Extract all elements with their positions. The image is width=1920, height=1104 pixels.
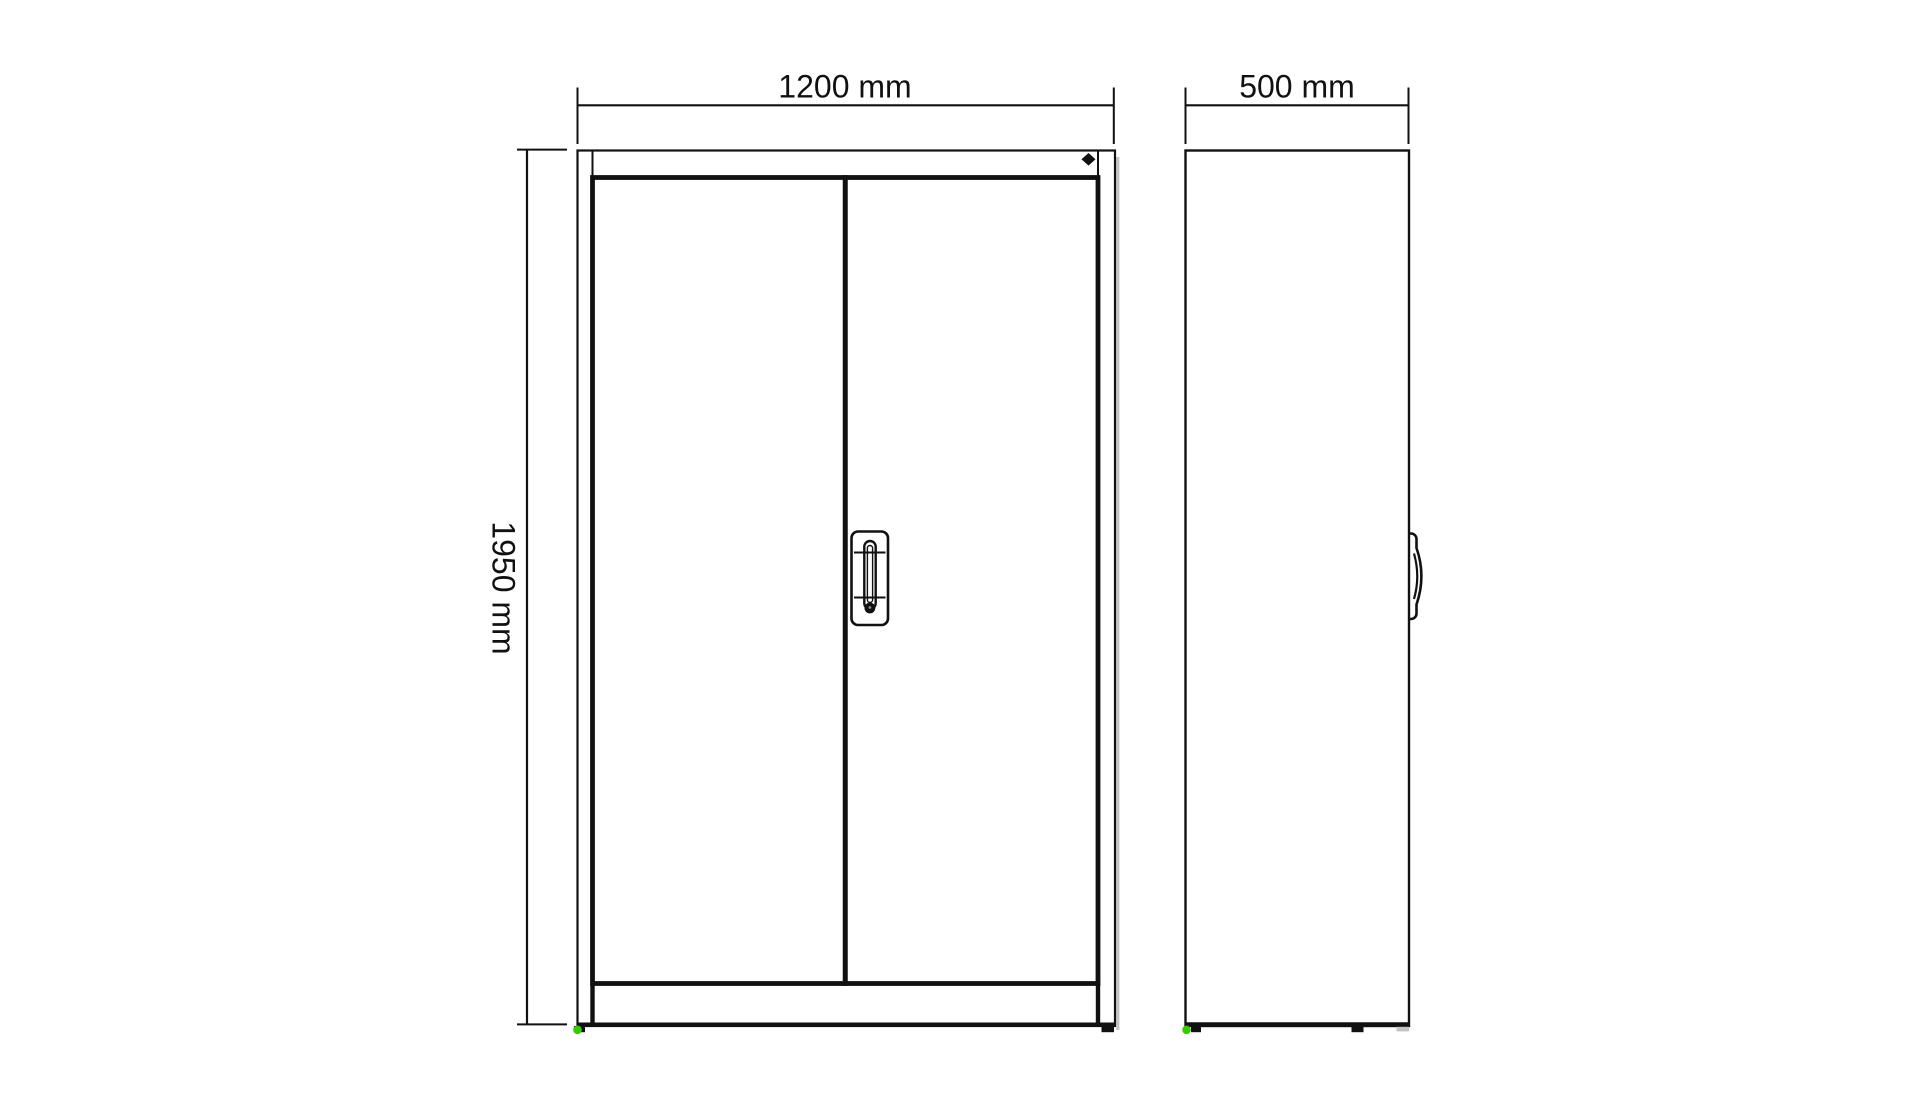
dimension-width-label: 1200 mm [778,69,911,105]
base-side-lines [593,984,1099,1025]
side-corner-shadow [1397,1027,1410,1032]
dimension-depth-label: 500 mm [1239,69,1355,105]
dimension-depth: 500 mm [1186,69,1409,145]
cabinet-dimension-drawing: 1200 mm 500 mm 1950 mm [0,0,1920,1104]
right-door-panel [845,178,1098,984]
door-handle [852,532,889,626]
front-right-shadow [1116,157,1119,1030]
side-handle-profile [1409,534,1421,620]
green-dot-icon [573,1026,582,1035]
dimension-width: 1200 mm [578,69,1114,145]
keyhole-dot-icon [869,606,872,609]
side-view [1182,151,1421,1035]
handle-grip-inner [867,546,872,603]
side-handle-grip-arc [1414,554,1417,600]
green-dot-icon [1182,1026,1191,1035]
side-foot-front [1191,1026,1201,1032]
side-foot-back [1352,1026,1364,1032]
dimension-height-extension-lines [517,150,567,1025]
side-cabinet-body [1186,151,1410,1027]
front-view [573,151,1119,1035]
front-frame-lines-top [593,151,1099,176]
diamond-icon [1082,153,1096,166]
technical-drawing-page: 1200 mm 500 mm 1950 mm [0,0,1920,1104]
handle-grip-bar [864,541,875,609]
dimension-height-label: 1950 mm [486,521,522,654]
front-foot-right [1102,1026,1115,1032]
left-door-panel [593,178,846,984]
handle-recess-lines [854,553,886,598]
dimension-height: 1950 mm [486,150,568,1025]
